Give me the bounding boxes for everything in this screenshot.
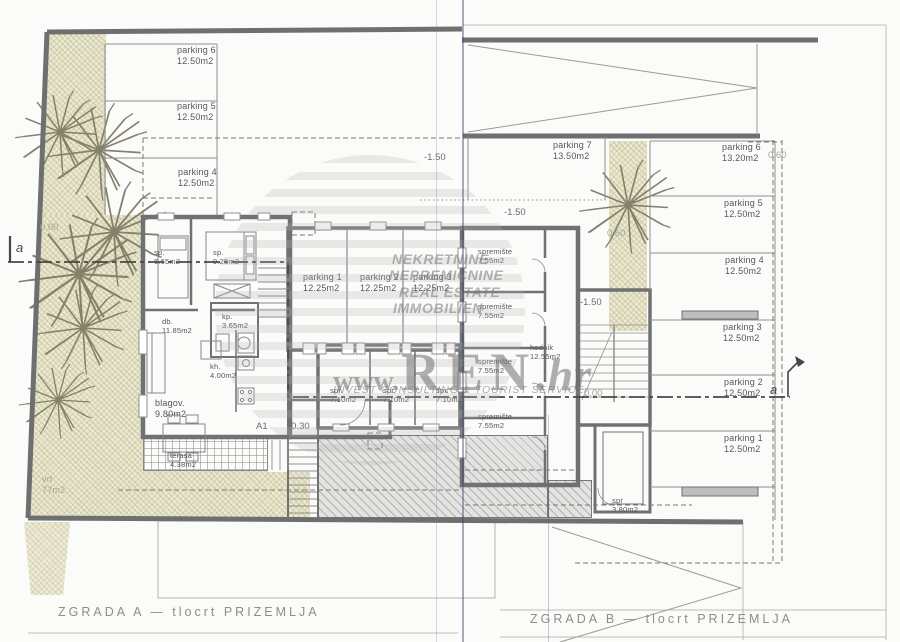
garage-a-parking2-label: parking 212.25m2 [360, 272, 399, 293]
storage-a1-label: spr.7.10m2 [330, 387, 356, 405]
level-plus060-2: 0.60 [607, 228, 626, 239]
scan-fold-line [462, 0, 464, 642]
terrace-steps [272, 440, 288, 470]
parking-b6-label: parking 613.20m2 [722, 142, 761, 163]
garden-patch-bottom-left [24, 522, 70, 595]
caption-building-b: ZGRADA B — tlocrt PRIZEMLJA [530, 612, 793, 626]
level-ground-a: 0.00 [40, 222, 59, 233]
parking-b7-label: parking 713.50m2 [553, 140, 592, 161]
hodnik-label: hodnik12.55m2 [530, 344, 561, 362]
spremiste2-label: spremište7.55m2 [478, 303, 512, 321]
garage-a-parking3-label: parking 312.25m2 [413, 272, 452, 293]
level-minus150-3: -1.50 [580, 297, 602, 308]
spremiste4-label: spremište7.55m2 [478, 413, 512, 431]
dining-label: blagov.9.80m2 [155, 398, 186, 419]
door-tag-a1: A1 [256, 421, 268, 432]
storage-a3-label: spr.7.10m2 [436, 387, 462, 405]
parking-a4-label: parking 412.50m2 [178, 167, 217, 188]
scan-fold-line [548, 415, 549, 642]
bath-label: kp.3.65m2 [222, 313, 248, 331]
parking-b5-label: parking 512.50m2 [724, 198, 763, 219]
watermark-word: NEKRETNINE [392, 251, 489, 267]
watermark-word: IMMOBILIEN [393, 300, 483, 316]
bedroom1-label: sp.6.65m2 [154, 249, 180, 267]
garage-a-parking1-label: parking 112.25m2 [303, 272, 342, 293]
parking-b1-label: parking 112.50m2 [724, 433, 763, 454]
floor-plan-page: parking 612.50m2 parking 512.50m2 parkin… [0, 0, 900, 642]
parking-a-stalls [105, 44, 217, 215]
spr-b-label: spr3.80m2 [612, 497, 638, 515]
parking-b2-label: parking 212.50m2 [724, 377, 763, 398]
ramp-arrow-top [468, 44, 757, 133]
caption-building-a: ZGRADA A — tlocrt PRIZEMLJA [58, 605, 320, 619]
section-letter-right: a [770, 382, 777, 397]
ramp-hatch-main [318, 435, 548, 518]
level-plus060-1: 0.60 [768, 150, 787, 161]
section-letter-left: a [16, 240, 23, 255]
ramp-hatch-side [548, 480, 592, 518]
parking-a5-label: parking 512.50m2 [177, 101, 216, 122]
parking-b4-label: parking 412.50m2 [725, 255, 764, 276]
watermark-url-name: REN [401, 341, 536, 403]
level-minus150-1: -1.50 [424, 152, 446, 163]
level-ground-b: 0.00 [584, 388, 603, 399]
storage-a2-label: spr.7.10m2 [383, 387, 409, 405]
level-minus150-2: -1.50 [504, 207, 526, 218]
spremiste3-label: spremište7.55m2 [478, 358, 512, 376]
parking-b3-label: parking 312.50m2 [723, 322, 762, 343]
garden-strip-top-left [30, 34, 106, 216]
bedroom2-label: sp.9.25m2 [213, 249, 239, 267]
living-label: db.11.85m2 [162, 318, 192, 336]
terrace-label: terasa4.38m2 [170, 452, 196, 470]
parking-a6-label: parking 612.50m2 [177, 45, 216, 66]
terrace-tiles [143, 437, 268, 471]
spremiste1-label: spremište7.55m2 [478, 248, 512, 266]
scan-fold-line [436, 0, 437, 642]
kitchen-label: kh.4.00m2 [210, 363, 236, 381]
garden-label: vrt77m2 [42, 474, 65, 495]
level-minus030: -0.30 [288, 421, 310, 432]
